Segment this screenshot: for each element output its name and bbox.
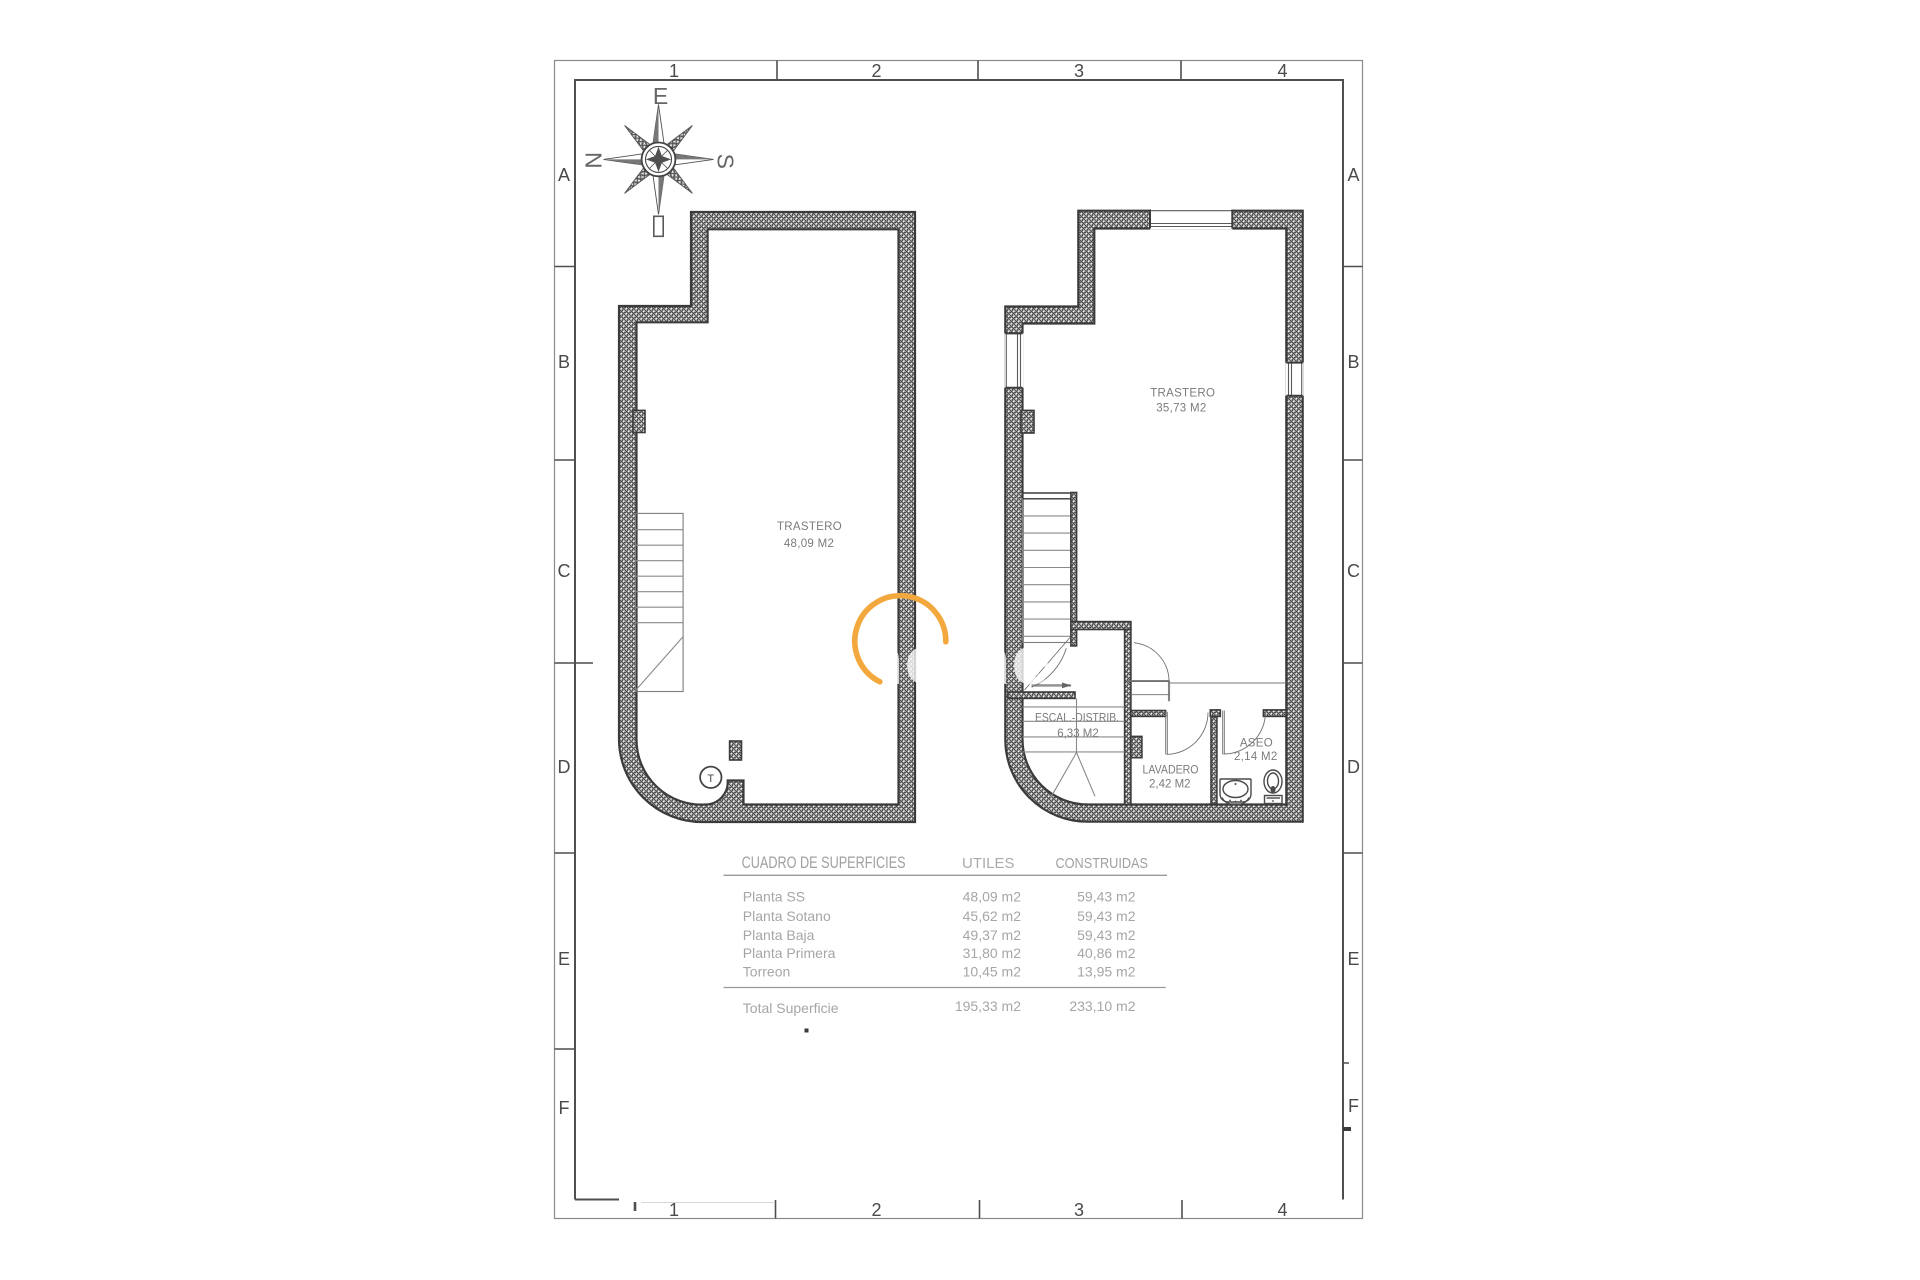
svg-text:2: 2 [871,1200,881,1220]
svg-text:Planta Baja: Planta Baja [743,927,815,943]
svg-text:3: 3 [1074,1200,1084,1220]
svg-text:ASEO: ASEO [1240,738,1273,750]
svg-text:4: 4 [1277,61,1287,81]
svg-text:E: E [653,83,668,109]
svg-text:UTILES: UTILES [962,855,1015,872]
svg-text:59,43 m2: 59,43 m2 [1077,888,1136,904]
svg-text:4: 4 [1277,1200,1287,1220]
svg-text:Total Superficie: Total Superficie [743,1000,839,1016]
svg-text:D: D [1347,757,1360,777]
svg-text:C: C [558,561,571,581]
svg-text:195,33 m2: 195,33 m2 [955,998,1021,1014]
svg-text:48,09 m2: 48,09 m2 [963,888,1022,904]
svg-text:CUADRO DE SUPERFICIES: CUADRO DE SUPERFICIES [742,854,906,872]
svg-text:3: 3 [1074,61,1084,81]
svg-text:E: E [558,949,570,969]
svg-text:49,37 m2: 49,37 m2 [963,927,1022,943]
svg-text:TRASTERO: TRASTERO [777,521,842,533]
svg-text:40,86 m2: 40,86 m2 [1077,945,1136,961]
svg-text:F: F [559,1098,570,1118]
svg-text:N: N [581,152,607,169]
svg-text:LAVADERO: LAVADERO [1143,765,1199,777]
svg-text:S: S [713,154,739,169]
svg-text:T: T [707,773,714,785]
svg-text:10,45 m2: 10,45 m2 [963,964,1022,980]
svg-text:59,43 m2: 59,43 m2 [1077,927,1136,943]
svg-text:48,09 M2: 48,09 M2 [784,538,834,550]
svg-text:2,42 M2: 2,42 M2 [1149,779,1191,791]
svg-text:D: D [558,757,571,777]
svg-text:6,33 M2: 6,33 M2 [1057,728,1099,740]
svg-text:A: A [1347,165,1359,185]
svg-text:2: 2 [871,61,881,81]
svg-text:13,95 m2: 13,95 m2 [1077,964,1136,980]
svg-text:Planta Primera: Planta Primera [743,945,836,961]
svg-text:E: E [1347,949,1359,969]
svg-text:A: A [558,165,570,185]
svg-text:B: B [1347,352,1359,372]
svg-text:59,43 m2: 59,43 m2 [1077,908,1136,924]
svg-text:B: B [558,352,570,372]
svg-text:home: home [861,621,1052,699]
svg-text:C: C [1347,561,1360,581]
svg-text:Planta SS: Planta SS [743,888,805,904]
svg-text:1: 1 [669,1200,679,1220]
svg-text:233,10 m2: 233,10 m2 [1069,998,1135,1014]
svg-text:CONSTRUIDAS: CONSTRUIDAS [1056,855,1149,872]
svg-text:ESCAL.-DISTRIB.: ESCAL.-DISTRIB. [1035,713,1119,725]
svg-text:Torreon: Torreon [743,964,790,980]
svg-text:Planta Sotano: Planta Sotano [743,908,831,924]
svg-text:35,73 M2: 35,73 M2 [1156,403,1206,415]
svg-text:2,14 M2: 2,14 M2 [1234,751,1278,763]
svg-text:TRASTERO: TRASTERO [1150,388,1215,400]
svg-text:F: F [1348,1096,1359,1116]
svg-text:1: 1 [669,61,679,81]
svg-text:31,80 m2: 31,80 m2 [963,945,1022,961]
svg-text:45,62 m2: 45,62 m2 [963,908,1022,924]
